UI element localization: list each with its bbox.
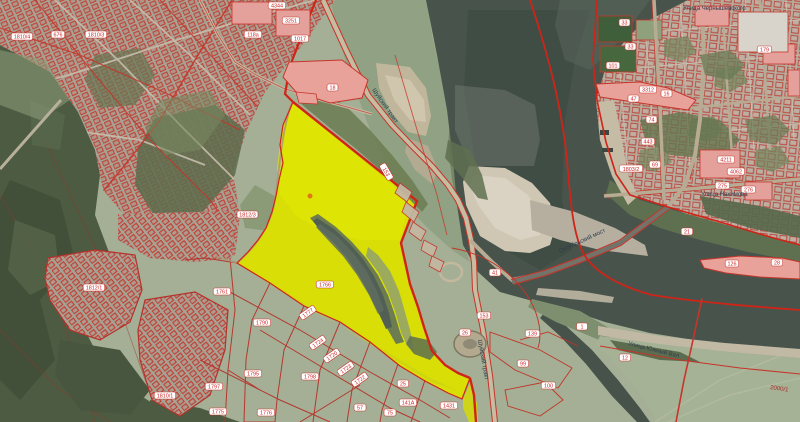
svg-text:1431: 1431: [443, 404, 455, 410]
svg-text:1798: 1798: [304, 375, 316, 381]
svg-text:3251: 3251: [285, 19, 297, 25]
svg-text:1: 1: [581, 325, 584, 331]
svg-text:179: 179: [760, 48, 769, 54]
svg-text:75: 75: [387, 411, 393, 417]
svg-text:3312: 3312: [642, 88, 654, 94]
svg-text:4344: 4344: [271, 4, 283, 10]
svg-text:99: 99: [520, 362, 526, 368]
svg-text:1810/1: 1810/1: [157, 394, 174, 400]
svg-text:Улица Нахимова: Улица Нахимова: [701, 192, 748, 198]
svg-text:4211: 4211: [720, 158, 732, 164]
svg-text:69: 69: [652, 163, 658, 169]
svg-text:33: 33: [628, 45, 634, 51]
svg-text:101: 101: [609, 64, 618, 70]
svg-text:12: 12: [622, 356, 628, 362]
svg-text:1761: 1761: [216, 290, 228, 296]
svg-text:1803/2: 1803/2: [623, 167, 640, 173]
svg-text:275: 275: [718, 184, 727, 190]
svg-text:118а: 118а: [247, 33, 259, 39]
svg-text:443: 443: [644, 140, 653, 146]
svg-text:25: 25: [400, 382, 406, 388]
svg-text:153: 153: [480, 314, 489, 320]
svg-text:57: 57: [357, 406, 363, 412]
svg-text:1810/3: 1810/3: [88, 33, 105, 39]
svg-text:28: 28: [774, 261, 780, 267]
svg-text:74: 74: [649, 118, 655, 124]
svg-text:1790: 1790: [256, 321, 268, 327]
svg-text:1776: 1776: [260, 411, 272, 417]
svg-text:1797: 1797: [208, 385, 220, 391]
svg-text:1017: 1017: [294, 37, 306, 43]
svg-text:Улица Чернышевского: Улица Чернышевского: [683, 6, 746, 12]
svg-text:100: 100: [544, 384, 553, 390]
svg-text:1795: 1795: [247, 372, 259, 378]
svg-text:16: 16: [664, 92, 670, 98]
svg-text:141А: 141А: [402, 401, 415, 407]
svg-text:41: 41: [492, 271, 498, 277]
svg-text:4062: 4062: [730, 170, 742, 176]
svg-text:676: 676: [54, 33, 63, 39]
svg-text:1812/1: 1812/1: [86, 286, 103, 292]
svg-text:47: 47: [631, 97, 637, 103]
svg-text:1766: 1766: [319, 283, 331, 289]
svg-text:1810/4: 1810/4: [14, 35, 31, 41]
svg-text:21: 21: [684, 230, 690, 236]
svg-text:1775: 1775: [212, 410, 224, 416]
svg-text:33: 33: [622, 21, 628, 27]
svg-text:26: 26: [462, 331, 468, 337]
svg-text:18: 18: [330, 86, 336, 92]
svg-text:126: 126: [728, 262, 737, 268]
svg-text:139: 139: [528, 332, 537, 338]
svg-text:1812/3: 1812/3: [239, 213, 256, 219]
